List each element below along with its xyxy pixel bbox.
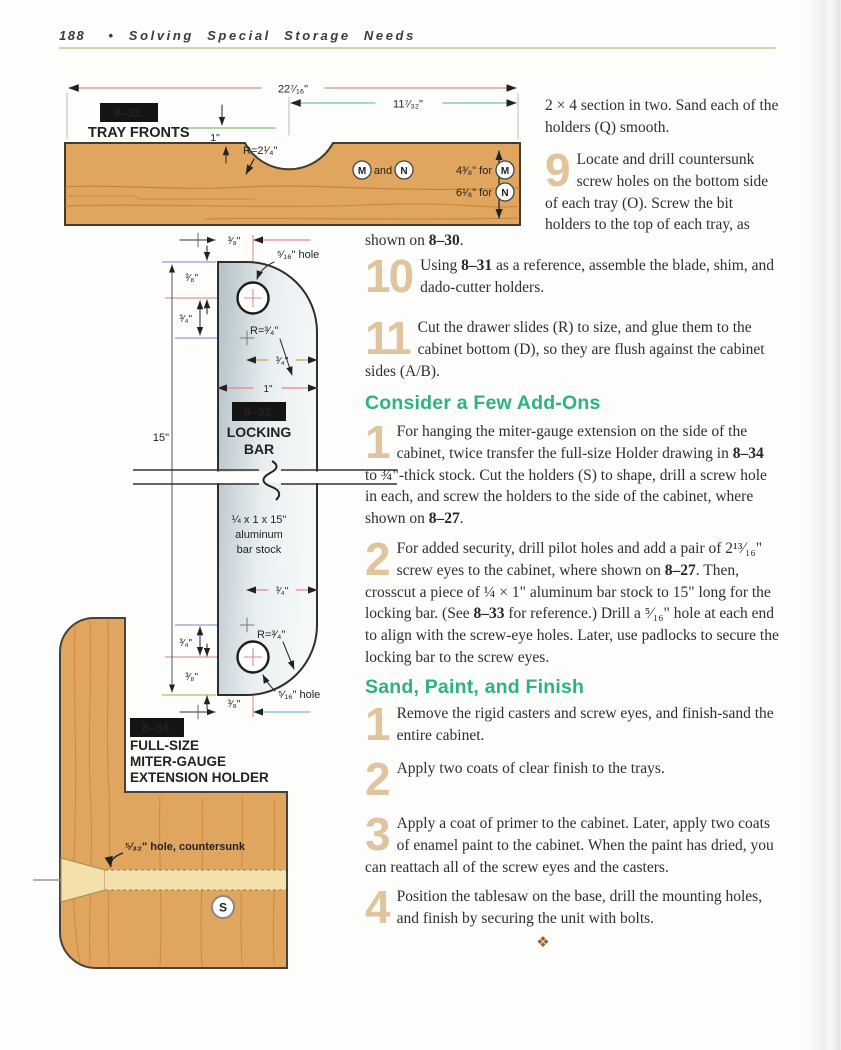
part-letter-m: M — [501, 166, 509, 177]
step-text: Remove the rigid casters and screw eyes,… — [397, 705, 774, 744]
figure-caption-line3: EXTENSION HOLDER — [130, 770, 269, 785]
step-11: 11 Cut the drawer slides (R) to size, an… — [365, 317, 777, 382]
intro-continuation: 2 × 4 section in two. Sand each of the h… — [545, 95, 779, 139]
step-9: 9 Locate and drill countersunk screw hol… — [545, 149, 778, 236]
finish-step-4: 4 Position the tablesaw on the base, dri… — [365, 886, 779, 930]
dim-38-label: ³⁄₈" — [228, 236, 241, 247]
figure-caption-line2: BAR — [244, 441, 274, 457]
fig-8-34-holder-diagram: ⁵⁄₃₂" hole, countersunk S 8–34. FULL-SIZ… — [30, 608, 310, 980]
dim-depth-label: 1" — [210, 132, 220, 144]
running-header: 188 • Solving Special Storage Needs — [59, 28, 416, 43]
section-heading-finish: Sand, Paint, and Finish — [365, 676, 584, 699]
page-edge-shadow — [805, 0, 841, 1050]
dim-34-label: ³⁄₄" — [179, 314, 192, 325]
step-number: 10 — [365, 258, 412, 295]
fig34-caption: 8–34. FULL-SIZE MITER-GAUGE EXTENSION HO… — [130, 718, 269, 785]
intro-text: 2 × 4 section in two. Sand each of the h… — [545, 97, 778, 136]
step-text: Apply a coat of primer to the cabinet. L… — [365, 815, 774, 876]
figure-tag: 8–33. — [244, 405, 274, 419]
stock-note-line2: aluminum — [235, 529, 283, 541]
figure-tag: 8–32. — [114, 106, 144, 120]
figure-caption-line1: FULL-SIZE — [130, 738, 199, 753]
step-9-continuation: shown on 8–30. — [365, 230, 775, 252]
figure-caption-line2: MITER-GAUGE — [130, 754, 226, 769]
height-for-n-label: 6¹⁄₈" for — [456, 187, 492, 199]
figure-tag: 8–34. — [142, 721, 172, 735]
end-ornament-icon: ❖ — [527, 933, 559, 951]
dim-38-label: ³⁄₈" — [185, 273, 198, 284]
section-heading-addons: Consider a Few Add-Ons — [365, 392, 601, 415]
hole-callout: ⁵⁄₁₆" hole — [277, 249, 319, 261]
step-text: Locate and drill countersunk screw holes… — [545, 151, 768, 233]
part-letter-n: N — [400, 166, 407, 177]
book-page: 188 • Solving Special Storage Needs 22⁷⁄… — [0, 0, 841, 1050]
step-text: Cut the drawer slides (R) to size, and g… — [365, 319, 765, 380]
heading-text: Sand, Paint, and Finish — [365, 676, 584, 698]
step-text: Using 8–31 as a reference, assemble the … — [420, 257, 774, 296]
addons-step-1: 1 For hanging the miter-gauge extension … — [365, 421, 777, 530]
step-text: For hanging the miter-gauge extension on… — [365, 423, 767, 527]
stock-note-line3: bar stock — [237, 544, 282, 556]
chapter-title: Solving Special Storage Needs — [129, 28, 416, 43]
step-number: 4 — [365, 889, 389, 926]
part-letter-m: M — [358, 166, 366, 177]
dim-radius-label: R=2¹⁄₄" — [243, 145, 277, 157]
radius-label: R=³⁄₄" — [250, 325, 278, 337]
part-letter-n: N — [501, 188, 508, 199]
and-label: and — [374, 165, 392, 177]
step-number: 3 — [365, 816, 389, 853]
part-letter-s: S — [219, 901, 227, 915]
dim-1-label: 1" — [263, 384, 273, 395]
step-number: 11 — [365, 320, 410, 357]
figure-caption-line1: LOCKING — [227, 424, 292, 440]
dim-15-label: 15" — [153, 432, 169, 444]
step-number: 1 — [365, 706, 389, 743]
dim-34-label: ³⁄₄" — [276, 356, 289, 367]
holder-shape — [60, 618, 287, 968]
fig32-caption: 8–32. TRAY FRONTS — [88, 103, 190, 141]
heading-text: Consider a Few Add-Ons — [365, 392, 601, 414]
dim-overall-label: 22⁷⁄₁₆" — [278, 84, 308, 96]
stock-note-line1: ¼ x 1 x 15" — [232, 514, 287, 526]
step-text: For added security, drill pilot holes an… — [365, 540, 779, 666]
step-10: 10 Using 8–31 as a reference, assemble t… — [365, 255, 777, 299]
step-text: shown on 8–30. — [365, 232, 464, 249]
part-letter-s-badge: S — [212, 896, 234, 918]
finish-step-2: 2 Apply two coats of clear finish to the… — [365, 758, 777, 798]
step-text: Position the tablesaw on the base, drill… — [397, 888, 763, 927]
dim-offset-label: 11⁷⁄₃₂" — [393, 99, 423, 111]
step-text: Apply two coats of clear finish to the t… — [397, 760, 665, 777]
step-number: 2 — [365, 761, 389, 798]
hole-note: ⁵⁄₃₂" hole, countersunk — [125, 841, 246, 853]
step-number: 1 — [365, 424, 389, 461]
dim-34-label: ³⁄₄" — [276, 586, 289, 597]
tray-board — [65, 143, 520, 225]
step-number: 9 — [545, 152, 569, 189]
step-number: 2 — [365, 541, 389, 578]
addons-step-2: 2 For added security, drill pilot holes … — [365, 538, 779, 669]
finish-step-1: 1 Remove the rigid casters and screw eye… — [365, 703, 777, 747]
page-number: 188 — [59, 28, 85, 43]
height-for-m-label: 4³⁄₈" for — [456, 165, 492, 177]
finish-step-3: 3 Apply a coat of primer to the cabinet.… — [365, 813, 779, 878]
fig-8-32-tray-fronts-diagram: 22⁷⁄₁₆" 11⁷⁄₃₂" 1" R=2¹⁄₄" M and N 4³⁄₈"… — [55, 75, 533, 235]
header-rule — [59, 47, 776, 49]
header-bullet-icon: • — [108, 28, 115, 43]
figure-caption: TRAY FRONTS — [88, 125, 190, 141]
